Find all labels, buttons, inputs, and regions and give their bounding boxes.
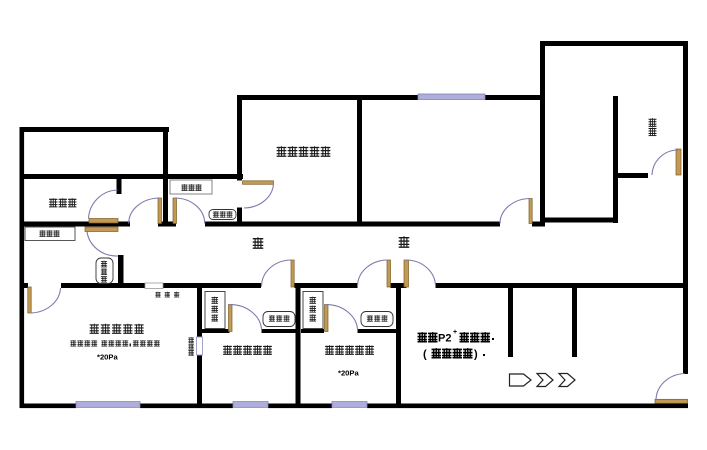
svg-text:*20Pa: *20Pa bbox=[338, 369, 359, 378]
svg-text:*20Pa: *20Pa bbox=[97, 353, 118, 362]
svg-text:(: ( bbox=[423, 349, 427, 361]
svg-text:): ) bbox=[474, 349, 478, 361]
svg-text:+: + bbox=[453, 329, 457, 336]
svg-text:P2: P2 bbox=[438, 333, 451, 345]
